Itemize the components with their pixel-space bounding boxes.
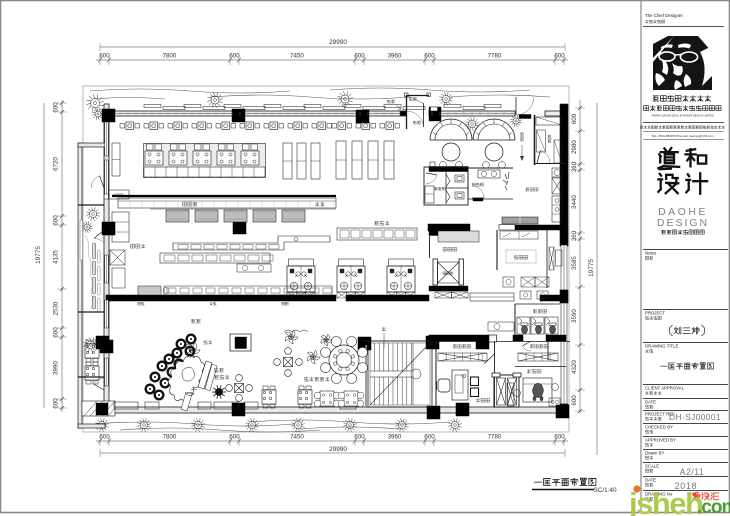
svg-text:600: 600 <box>229 434 240 441</box>
svg-text:.com: .com <box>697 497 730 516</box>
svg-text:DATE: DATE <box>645 478 656 483</box>
svg-text:TAIWAN DAOHE IDEAL INTERIOR DE: TAIWAN DAOHE IDEAL INTERIOR DESIGN LIMIT… <box>651 114 714 118</box>
svg-text:SCALE: SCALE <box>645 464 659 469</box>
svg-text:600: 600 <box>571 113 578 124</box>
svg-text:APPROVED BY: APPROVED BY <box>645 438 676 443</box>
svg-text:600: 600 <box>229 53 240 60</box>
svg-text:DH-SJ00001: DH-SJ00001 <box>669 412 721 422</box>
svg-text:3585: 3585 <box>571 256 578 270</box>
svg-text:600: 600 <box>53 398 60 409</box>
svg-text:2530: 2530 <box>53 301 60 315</box>
svg-text:6720: 6720 <box>53 157 60 171</box>
svg-text:DESIGN: DESIGN <box>657 217 709 229</box>
svg-text:600: 600 <box>53 102 60 113</box>
svg-text:7450: 7450 <box>290 434 304 441</box>
svg-text:7800: 7800 <box>163 434 177 441</box>
svg-text:600: 600 <box>53 327 60 338</box>
svg-text:3960: 3960 <box>388 53 402 60</box>
svg-text:3960: 3960 <box>388 434 402 441</box>
svg-text:7780: 7780 <box>488 434 502 441</box>
svg-text:SC/1:40: SC/1:40 <box>593 487 617 494</box>
svg-text:TEL: 0591-88345678 E-mail: da: TEL: 0591-88345678 E-mail: daohesj@163.c… <box>652 134 715 138</box>
svg-text:360: 360 <box>571 230 578 241</box>
svg-text:600: 600 <box>571 395 578 406</box>
svg-text:4135: 4135 <box>53 250 60 264</box>
svg-text:A2/11: A2/11 <box>680 467 705 477</box>
svg-text:600: 600 <box>354 53 365 60</box>
svg-text:600: 600 <box>424 53 435 60</box>
svg-text:2980: 2980 <box>571 140 578 154</box>
svg-text:7800: 7800 <box>163 53 177 60</box>
svg-text:DATE: DATE <box>645 400 656 405</box>
svg-text:19775: 19775 <box>588 259 595 277</box>
svg-text:The Chief Designer: The Chief Designer <box>645 13 683 18</box>
svg-text:600: 600 <box>354 434 365 441</box>
svg-text:3440: 3440 <box>571 195 578 209</box>
svg-text:29990: 29990 <box>329 39 347 46</box>
svg-text:600: 600 <box>424 434 435 441</box>
svg-text:Notes: Notes <box>645 251 656 256</box>
svg-text:7780: 7780 <box>488 53 502 60</box>
svg-text:29990: 29990 <box>329 446 347 453</box>
svg-text:Drawn BY: Drawn BY <box>645 451 664 456</box>
svg-text:CHECKED BY: CHECKED BY <box>645 425 673 430</box>
svg-text:360: 360 <box>571 161 578 172</box>
svg-text:600: 600 <box>554 434 565 441</box>
svg-text:600: 600 <box>53 215 60 226</box>
svg-text:600: 600 <box>554 53 565 60</box>
svg-text:7450: 7450 <box>290 53 304 60</box>
svg-text:jsheh: jsheh <box>628 486 703 516</box>
svg-text:600: 600 <box>99 434 110 441</box>
svg-text:3990: 3990 <box>53 361 60 375</box>
svg-text:19775: 19775 <box>35 246 42 264</box>
svg-text:PROJECT: PROJECT <box>645 311 665 316</box>
svg-text:CLIENT APPROVAL: CLIENT APPROVAL <box>645 386 685 391</box>
svg-text:600: 600 <box>99 53 110 60</box>
svg-text:3590: 3590 <box>571 309 578 323</box>
svg-text:DRAWING TITLE: DRAWING TITLE <box>645 344 679 349</box>
svg-text:4320: 4320 <box>571 360 578 374</box>
